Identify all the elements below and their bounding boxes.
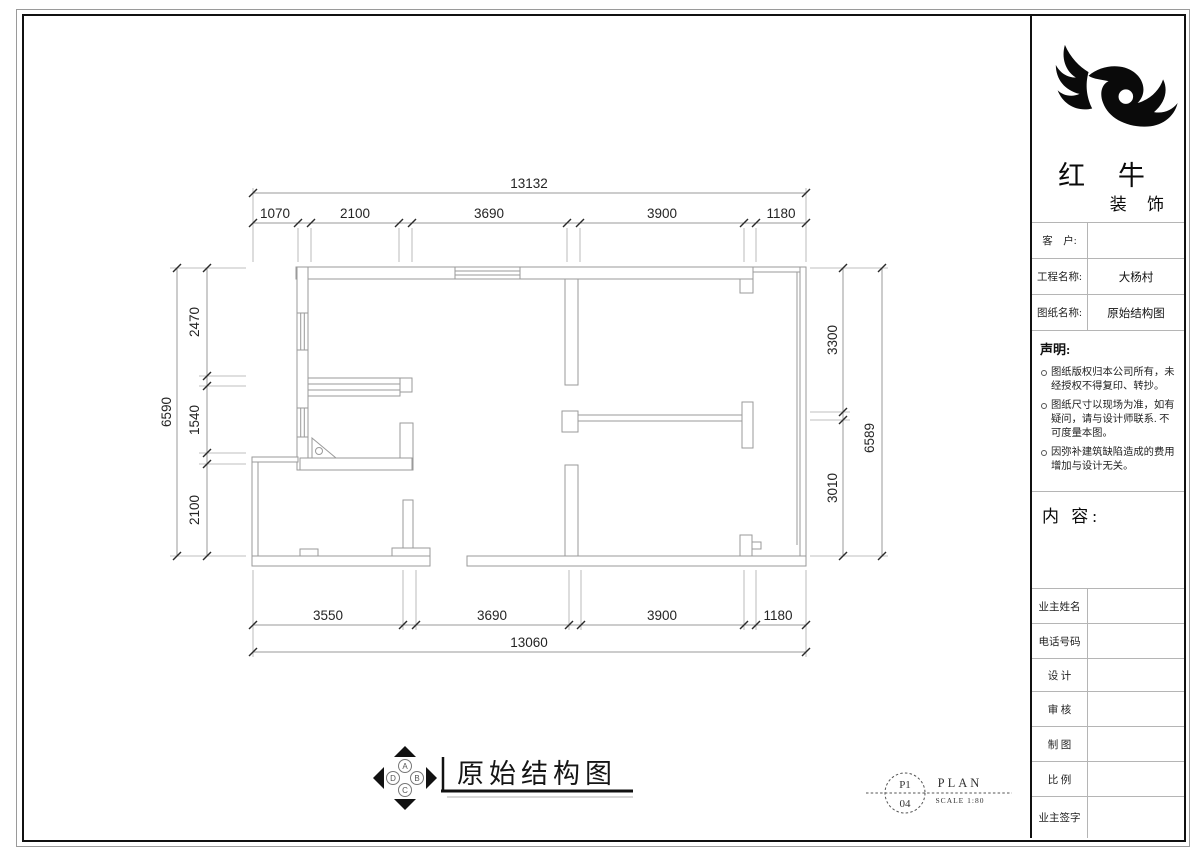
dim-top-seg-5: 1180	[766, 206, 795, 221]
signature-row-review: 审 核	[1032, 691, 1184, 726]
statement-section: 声明: 图纸版权归本公司所有，未经授权不得复印、转抄。 图纸尺寸以现场为准，如有…	[1032, 330, 1184, 491]
plan-walls	[252, 267, 806, 566]
dim-right-total: 6589	[862, 423, 877, 453]
drawing-sheet: 13132 1070 2100 3690 3900 1180 3550 3690…	[0, 0, 1200, 865]
signature-label: 设 计	[1032, 659, 1088, 691]
field-label-project: 工程名称:	[1032, 259, 1088, 294]
dim-bottom-seg-3: 3900	[647, 608, 677, 623]
dim-top-seg-1: 1070	[260, 206, 290, 221]
statement-item: 图纸尺寸以现场为准，如有疑问，请与设计师联系. 不可度量本图。	[1040, 399, 1178, 441]
field-row-customer: 客 户:	[1032, 222, 1184, 258]
page-ref-type: PLAN	[938, 776, 983, 790]
dim-left-seg-3: 2100	[187, 495, 202, 525]
company-name-sub: 装 饰	[1110, 190, 1172, 215]
signature-row-scale: 比 例	[1032, 761, 1184, 796]
company-logo-area: 红 牛 装 饰	[1032, 16, 1184, 222]
signature-row-owner-sign: 业主签字	[1032, 796, 1184, 838]
statement-item-text: 图纸尺寸以现场为准，如有疑问，请与设计师联系. 不可度量本图。	[1051, 399, 1178, 441]
compass-letter-d: D	[390, 774, 396, 783]
drawing-caption-title: 原始结构图	[457, 752, 617, 791]
compass-letter-b: B	[414, 774, 419, 783]
page-ref-scale: SCALE 1:80	[936, 796, 985, 805]
signature-label: 业主签字	[1032, 797, 1088, 838]
dim-left-seg-1: 2470	[187, 307, 202, 337]
signature-row-owner-name: 业主姓名	[1032, 588, 1184, 623]
dimension-labels: 13132 1070 2100 3690 3900 1180 3550 3690…	[159, 176, 877, 650]
dim-top-seg-3: 3690	[474, 206, 504, 221]
dim-left-seg-2: 1540	[187, 405, 202, 435]
signature-label: 业主姓名	[1032, 589, 1088, 623]
compass-letter-c: C	[402, 786, 408, 795]
dim-bottom-seg-4: 1180	[763, 608, 792, 623]
title-block: 红 牛 装 饰 客 户: 工程名称: 大杨村 图纸名称: 原始结构图 声明: 图…	[1030, 16, 1184, 838]
page-ref-code-bottom: 04	[900, 798, 912, 810]
plan-windows	[297, 267, 520, 437]
dim-right-seg-2: 3010	[825, 473, 840, 503]
bullet-dot-icon	[1041, 370, 1047, 376]
company-name-main: 红 牛	[1032, 154, 1184, 193]
field-label-customer: 客 户:	[1032, 223, 1088, 258]
statement-item: 因弥补建筑缺陷造成的费用增加与设计无关。	[1040, 446, 1178, 474]
signature-label: 比 例	[1032, 762, 1088, 796]
bullet-dot-icon	[1041, 403, 1047, 409]
dim-bottom-total: 13060	[510, 635, 548, 650]
signature-label: 电话号码	[1032, 624, 1088, 658]
compass-letter-a: A	[402, 762, 408, 771]
statement-item: 图纸版权归本公司所有，未经授权不得复印、转抄。	[1040, 366, 1178, 394]
dimension-lines	[177, 193, 882, 652]
statement-heading: 声明:	[1040, 339, 1178, 358]
dimension-ticks	[173, 189, 886, 656]
page-ref: P1 04 PLAN SCALE 1:80	[866, 773, 1012, 813]
dim-top-seg-2: 2100	[340, 206, 370, 221]
field-row-drawing: 图纸名称: 原始结构图	[1032, 294, 1184, 330]
field-value-project: 大杨村	[1088, 269, 1184, 285]
content-section: 内 容:	[1032, 491, 1184, 588]
signature-row-design: 设 计	[1032, 658, 1184, 691]
content-heading: 内 容:	[1042, 502, 1184, 527]
extension-lines	[170, 188, 888, 657]
dim-right-seg-1: 3300	[825, 325, 840, 355]
red-bull-logo-icon	[1034, 34, 1184, 152]
signature-label: 审 核	[1032, 692, 1088, 726]
dim-top-seg-4: 3900	[647, 206, 677, 221]
signature-row-phone: 电话号码	[1032, 623, 1184, 658]
dim-left-total: 6590	[159, 397, 174, 427]
floor-plan-canvas: 13132 1070 2100 3690 3900 1180 3550 3690…	[0, 0, 1200, 865]
statement-item-text: 图纸版权归本公司所有，未经授权不得复印、转抄。	[1051, 366, 1178, 394]
compass-icon: A B C D	[373, 746, 437, 810]
dim-bottom-seg-2: 3690	[477, 608, 507, 623]
signature-row-draft: 制 图	[1032, 726, 1184, 761]
shower-symbol-icon	[312, 438, 336, 458]
field-label-drawing: 图纸名称:	[1032, 295, 1088, 330]
field-row-project: 工程名称: 大杨村	[1032, 258, 1184, 294]
statement-item-text: 因弥补建筑缺陷造成的费用增加与设计无关。	[1051, 446, 1178, 474]
field-value-drawing: 原始结构图	[1088, 305, 1184, 321]
page-ref-code-top: P1	[899, 779, 911, 791]
dim-top-total: 13132	[510, 176, 548, 191]
signature-label: 制 图	[1032, 727, 1088, 761]
bullet-dot-icon	[1041, 450, 1047, 456]
dim-bottom-seg-1: 3550	[313, 608, 343, 623]
